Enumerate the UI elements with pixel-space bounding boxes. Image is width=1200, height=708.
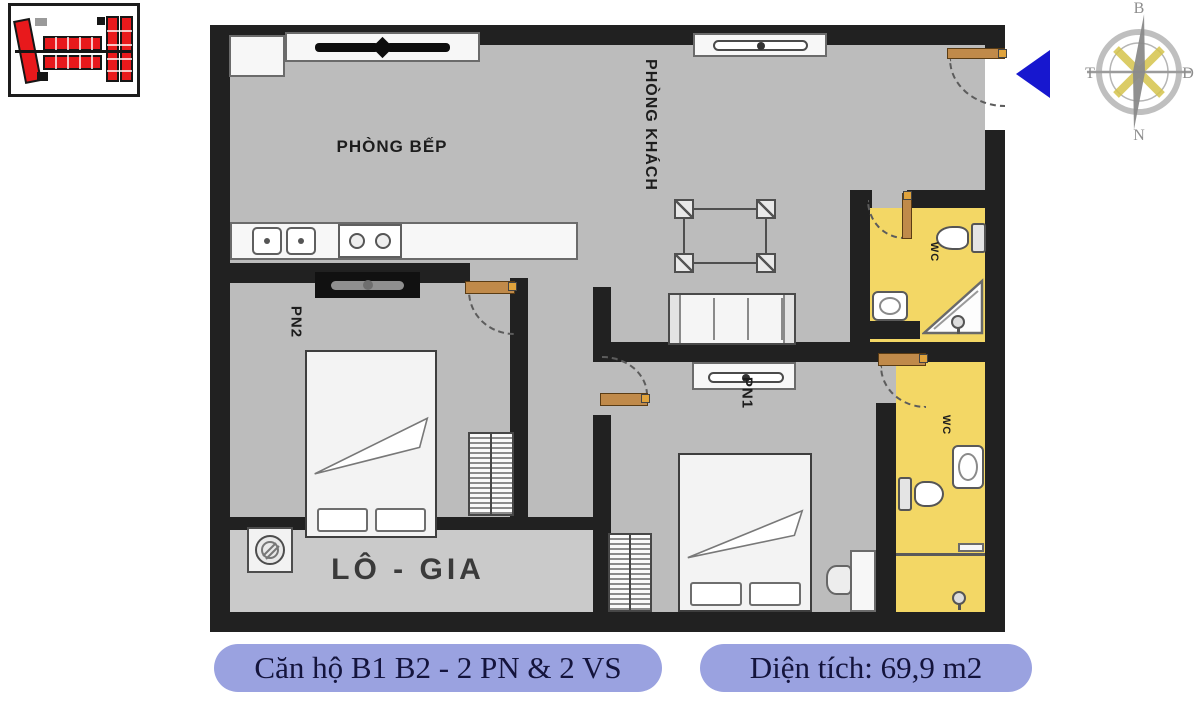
- area-pill: Diện tích: 69,9 m2: [700, 644, 1032, 692]
- room-label-loggia: LÔ - GIA: [331, 553, 485, 587]
- dining-table-icon: [683, 208, 767, 264]
- sofa-seat: [681, 298, 715, 340]
- compass-north-label: B: [1134, 0, 1145, 17]
- bed-icon-bedroom2: [305, 350, 437, 538]
- floor-plan: PHÒNG BẾP PHÒNG KHÁCH PN2: [210, 25, 1005, 632]
- entrance-arrow-icon: [1016, 50, 1050, 98]
- blanket-fold: [307, 352, 435, 484]
- pillow: [690, 582, 742, 606]
- wc-top-counter: [858, 321, 920, 339]
- sofa-arm: [783, 295, 794, 343]
- chair-icon: [674, 199, 694, 219]
- door-wc-bottom-icon: [878, 353, 926, 366]
- dresser-icon-bedroom1: [608, 533, 652, 612]
- pillow: [749, 582, 801, 606]
- chair-icon: [756, 253, 776, 273]
- room-label-bedroom1: PN1: [739, 377, 756, 409]
- window-sash: [386, 43, 450, 52]
- kitchen-sink-icon: [252, 227, 316, 255]
- basin-icon-wc-bottom: [952, 445, 984, 489]
- room-label-kitchen: PHÒNG BẾP: [336, 137, 447, 157]
- kitchen-window-icon: [285, 32, 480, 62]
- desk-icon: [850, 550, 876, 612]
- washing-machine-icon: [247, 527, 293, 573]
- window-latch: [372, 36, 393, 57]
- sofa-arm: [670, 295, 681, 343]
- keyplan-building-icon: [11, 6, 137, 94]
- wall-wc-bottom-left: [876, 403, 896, 612]
- room-label-living: PHÒNG KHÁCH: [641, 59, 659, 191]
- toilet-icon-wc-bottom: [898, 477, 944, 511]
- toilet-tank: [971, 223, 986, 253]
- wall-wc-top-left: [850, 190, 870, 342]
- wall-outer-bottom: [210, 612, 1005, 632]
- pillow: [317, 508, 368, 532]
- entrance-door-icon: [947, 48, 1005, 59]
- dresser-icon-bedroom2: [468, 432, 514, 516]
- living-window-icon: [693, 33, 827, 57]
- toilet-tank: [898, 477, 912, 511]
- chair-icon: [674, 253, 694, 273]
- floor-plan-page: B T D N: [0, 0, 1200, 708]
- fridge-icon: [229, 35, 285, 77]
- corner-shower-icon: [922, 277, 984, 340]
- door-bedroom1-icon: [600, 393, 648, 406]
- toilet-icon-wc-top: [936, 223, 986, 253]
- blanket-fold: [680, 455, 810, 567]
- burner: [375, 233, 391, 249]
- area-label: Diện tích: 69,9 m2: [750, 650, 982, 686]
- keyplan-thumbnail: [8, 3, 140, 97]
- floor-drain-icon: [952, 591, 966, 605]
- compass-rose-icon: B T D N: [1082, 0, 1196, 145]
- unit-pill: Căn hộ B1 B2 - 2 PN & 2 VS: [214, 644, 662, 692]
- compass-south-label: N: [1133, 127, 1145, 144]
- stove-icon: [338, 224, 402, 258]
- sofa-seat: [749, 298, 783, 340]
- compass-east-label: D: [1182, 65, 1194, 82]
- basin-icon-wc-top: [872, 291, 908, 321]
- floor-drain-icon: [951, 315, 965, 329]
- sink-basin: [252, 227, 282, 255]
- window-slider: [713, 40, 808, 51]
- pillow: [375, 508, 426, 532]
- burner: [349, 233, 365, 249]
- unit-label: Căn hộ B1 B2 - 2 PN & 2 VS: [254, 650, 621, 686]
- wardrobe-icon: [315, 272, 420, 298]
- door-bedroom2-icon: [465, 281, 515, 294]
- room-label-wc-bottom: WC: [940, 415, 952, 435]
- window-sash: [315, 43, 379, 52]
- sink-basin: [286, 227, 316, 255]
- bed-icon-bedroom1: [678, 453, 812, 612]
- sofa-icon: [668, 293, 796, 345]
- wc-shelf: [958, 543, 984, 552]
- toilet-bowl: [914, 481, 944, 508]
- wc-partition-line: [896, 553, 985, 556]
- door-wc-top-icon: [902, 193, 912, 239]
- chair-icon: [756, 199, 776, 219]
- sofa-seat: [715, 298, 749, 340]
- wardrobe-slider: [331, 281, 405, 290]
- room-label-bedroom2: PN2: [288, 306, 305, 338]
- toilet-bowl: [936, 226, 969, 249]
- desk-chair-icon: [826, 565, 852, 595]
- compass-west-label: T: [1085, 65, 1095, 82]
- room-label-wc-top: WC: [928, 242, 940, 262]
- wall-wc-top-seg2: [907, 190, 985, 208]
- wall-outer-left: [210, 25, 230, 632]
